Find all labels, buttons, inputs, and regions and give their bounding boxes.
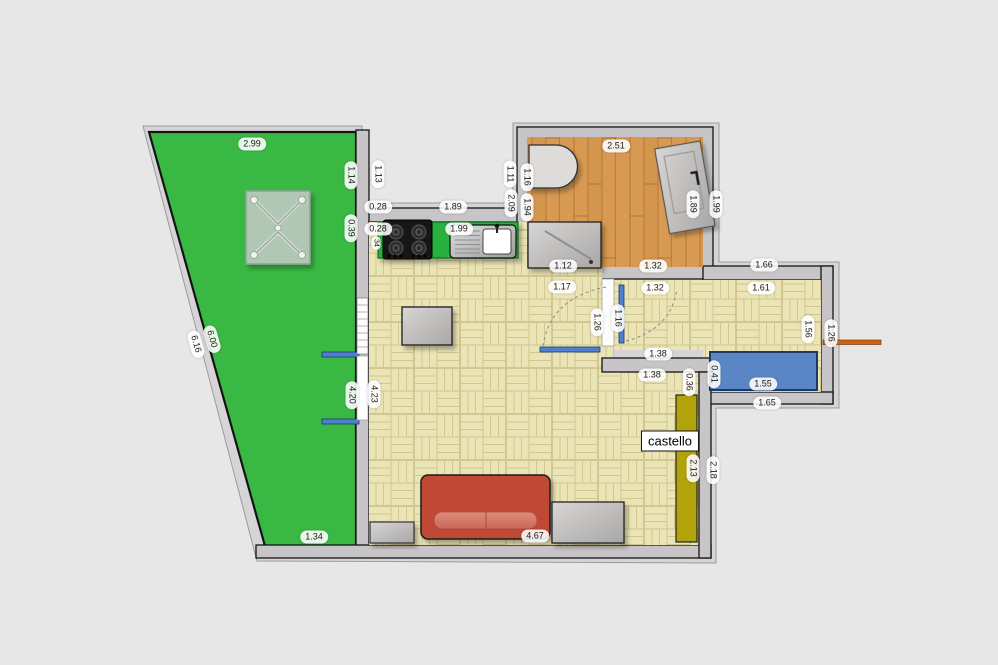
hallway-floor (614, 280, 821, 350)
door-leaf-living[interactable] (540, 347, 600, 352)
window-lower[interactable] (322, 419, 359, 424)
wall-opening (357, 356, 368, 420)
side-table-left[interactable] (370, 522, 414, 543)
door-opening (602, 279, 614, 346)
garden-table[interactable] (246, 191, 310, 264)
door-threshold-floor (602, 346, 614, 358)
sofa[interactable] (421, 475, 550, 539)
castello-strip[interactable] (676, 395, 697, 542)
toilet[interactable] (529, 145, 578, 188)
floor-plan: 2.991.140.391.130.281.891.112.090.28341.… (0, 0, 998, 665)
entrance-door[interactable] (823, 340, 881, 345)
coffee-table[interactable] (402, 307, 452, 345)
floor-plan-drawing (0, 0, 998, 665)
door-leaf-hallway[interactable] (619, 285, 624, 343)
shower[interactable] (528, 222, 601, 268)
wardrobe[interactable] (710, 352, 817, 390)
room-label-castello: castello (641, 431, 699, 452)
kitchen-sink[interactable] (450, 224, 516, 258)
side-table-right[interactable] (552, 502, 624, 543)
window-upper[interactable] (322, 352, 359, 357)
kitchen (378, 220, 518, 259)
stove[interactable] (383, 220, 432, 259)
